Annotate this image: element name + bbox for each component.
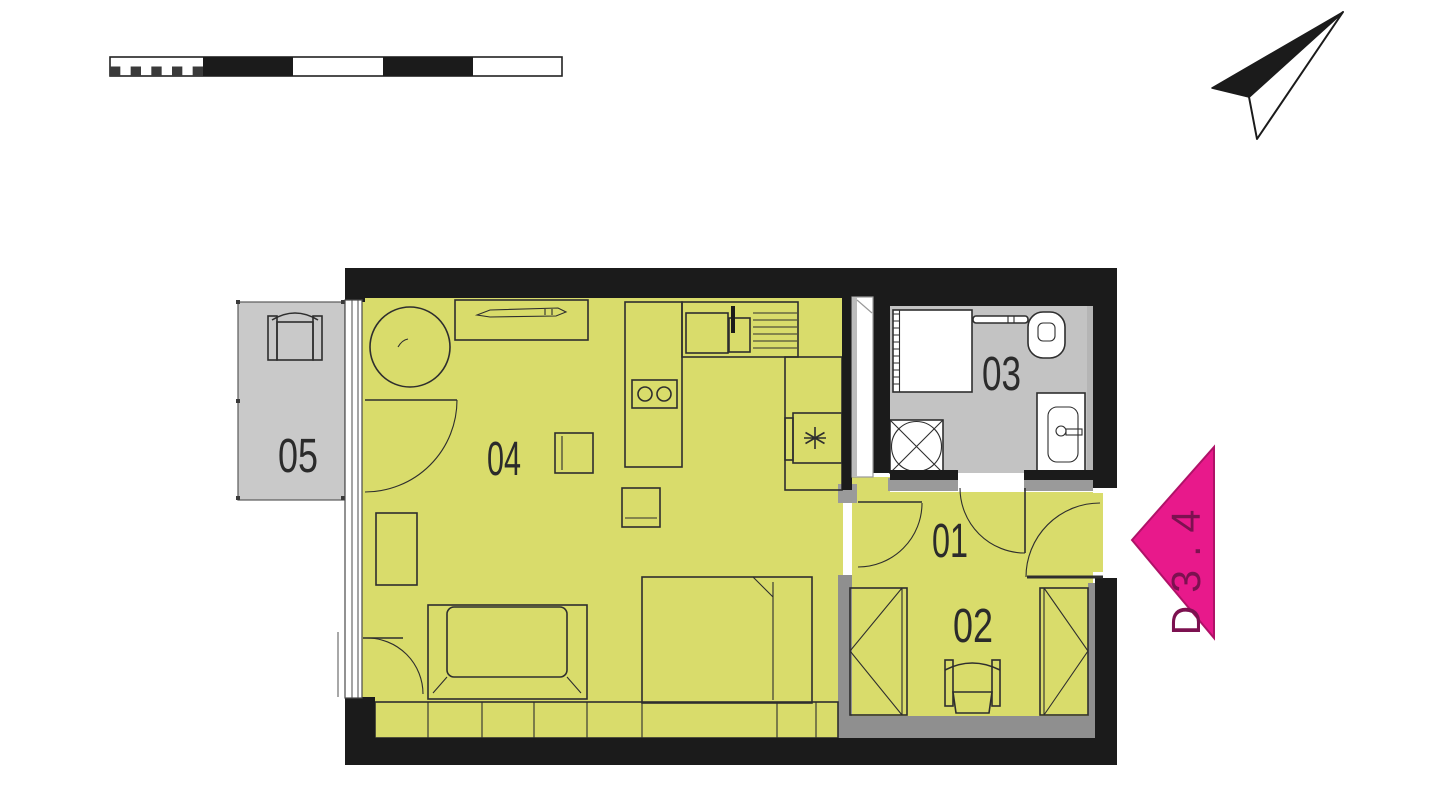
entrance-marker: D3.4 bbox=[1132, 447, 1214, 638]
scale-bar-icon bbox=[110, 57, 562, 76]
wall-lining bbox=[1088, 583, 1095, 738]
entrance-threshold-floor bbox=[1093, 493, 1103, 572]
floor-fills bbox=[238, 298, 1103, 738]
room-label-03: 03 bbox=[982, 348, 1021, 401]
room-label-04: 04 bbox=[487, 433, 521, 486]
washing-machine-icon bbox=[890, 420, 943, 473]
shaft bbox=[852, 297, 873, 477]
floor-plan-drawing: 01 02 03 04 05 D3.4 bbox=[0, 0, 1440, 804]
washbasin-icon bbox=[1037, 393, 1085, 472]
room-label-02: 02 bbox=[953, 600, 993, 653]
window-strip bbox=[345, 300, 362, 698]
shower bbox=[893, 310, 972, 392]
room-label-05: 05 bbox=[278, 430, 318, 483]
wall-lining bbox=[1087, 300, 1093, 473]
living-room-floor bbox=[362, 298, 843, 738]
towel-rail-icon bbox=[973, 316, 1028, 323]
window-parapet bbox=[845, 716, 1088, 738]
entrance-marker-label: D3.4 bbox=[1163, 497, 1209, 636]
toilet-icon bbox=[1028, 312, 1065, 358]
room-label-01: 01 bbox=[932, 515, 968, 568]
floor-plan-canvas: 01 02 03 04 05 D3.4 bbox=[0, 0, 1440, 804]
north-arrow-icon bbox=[1212, 12, 1343, 139]
